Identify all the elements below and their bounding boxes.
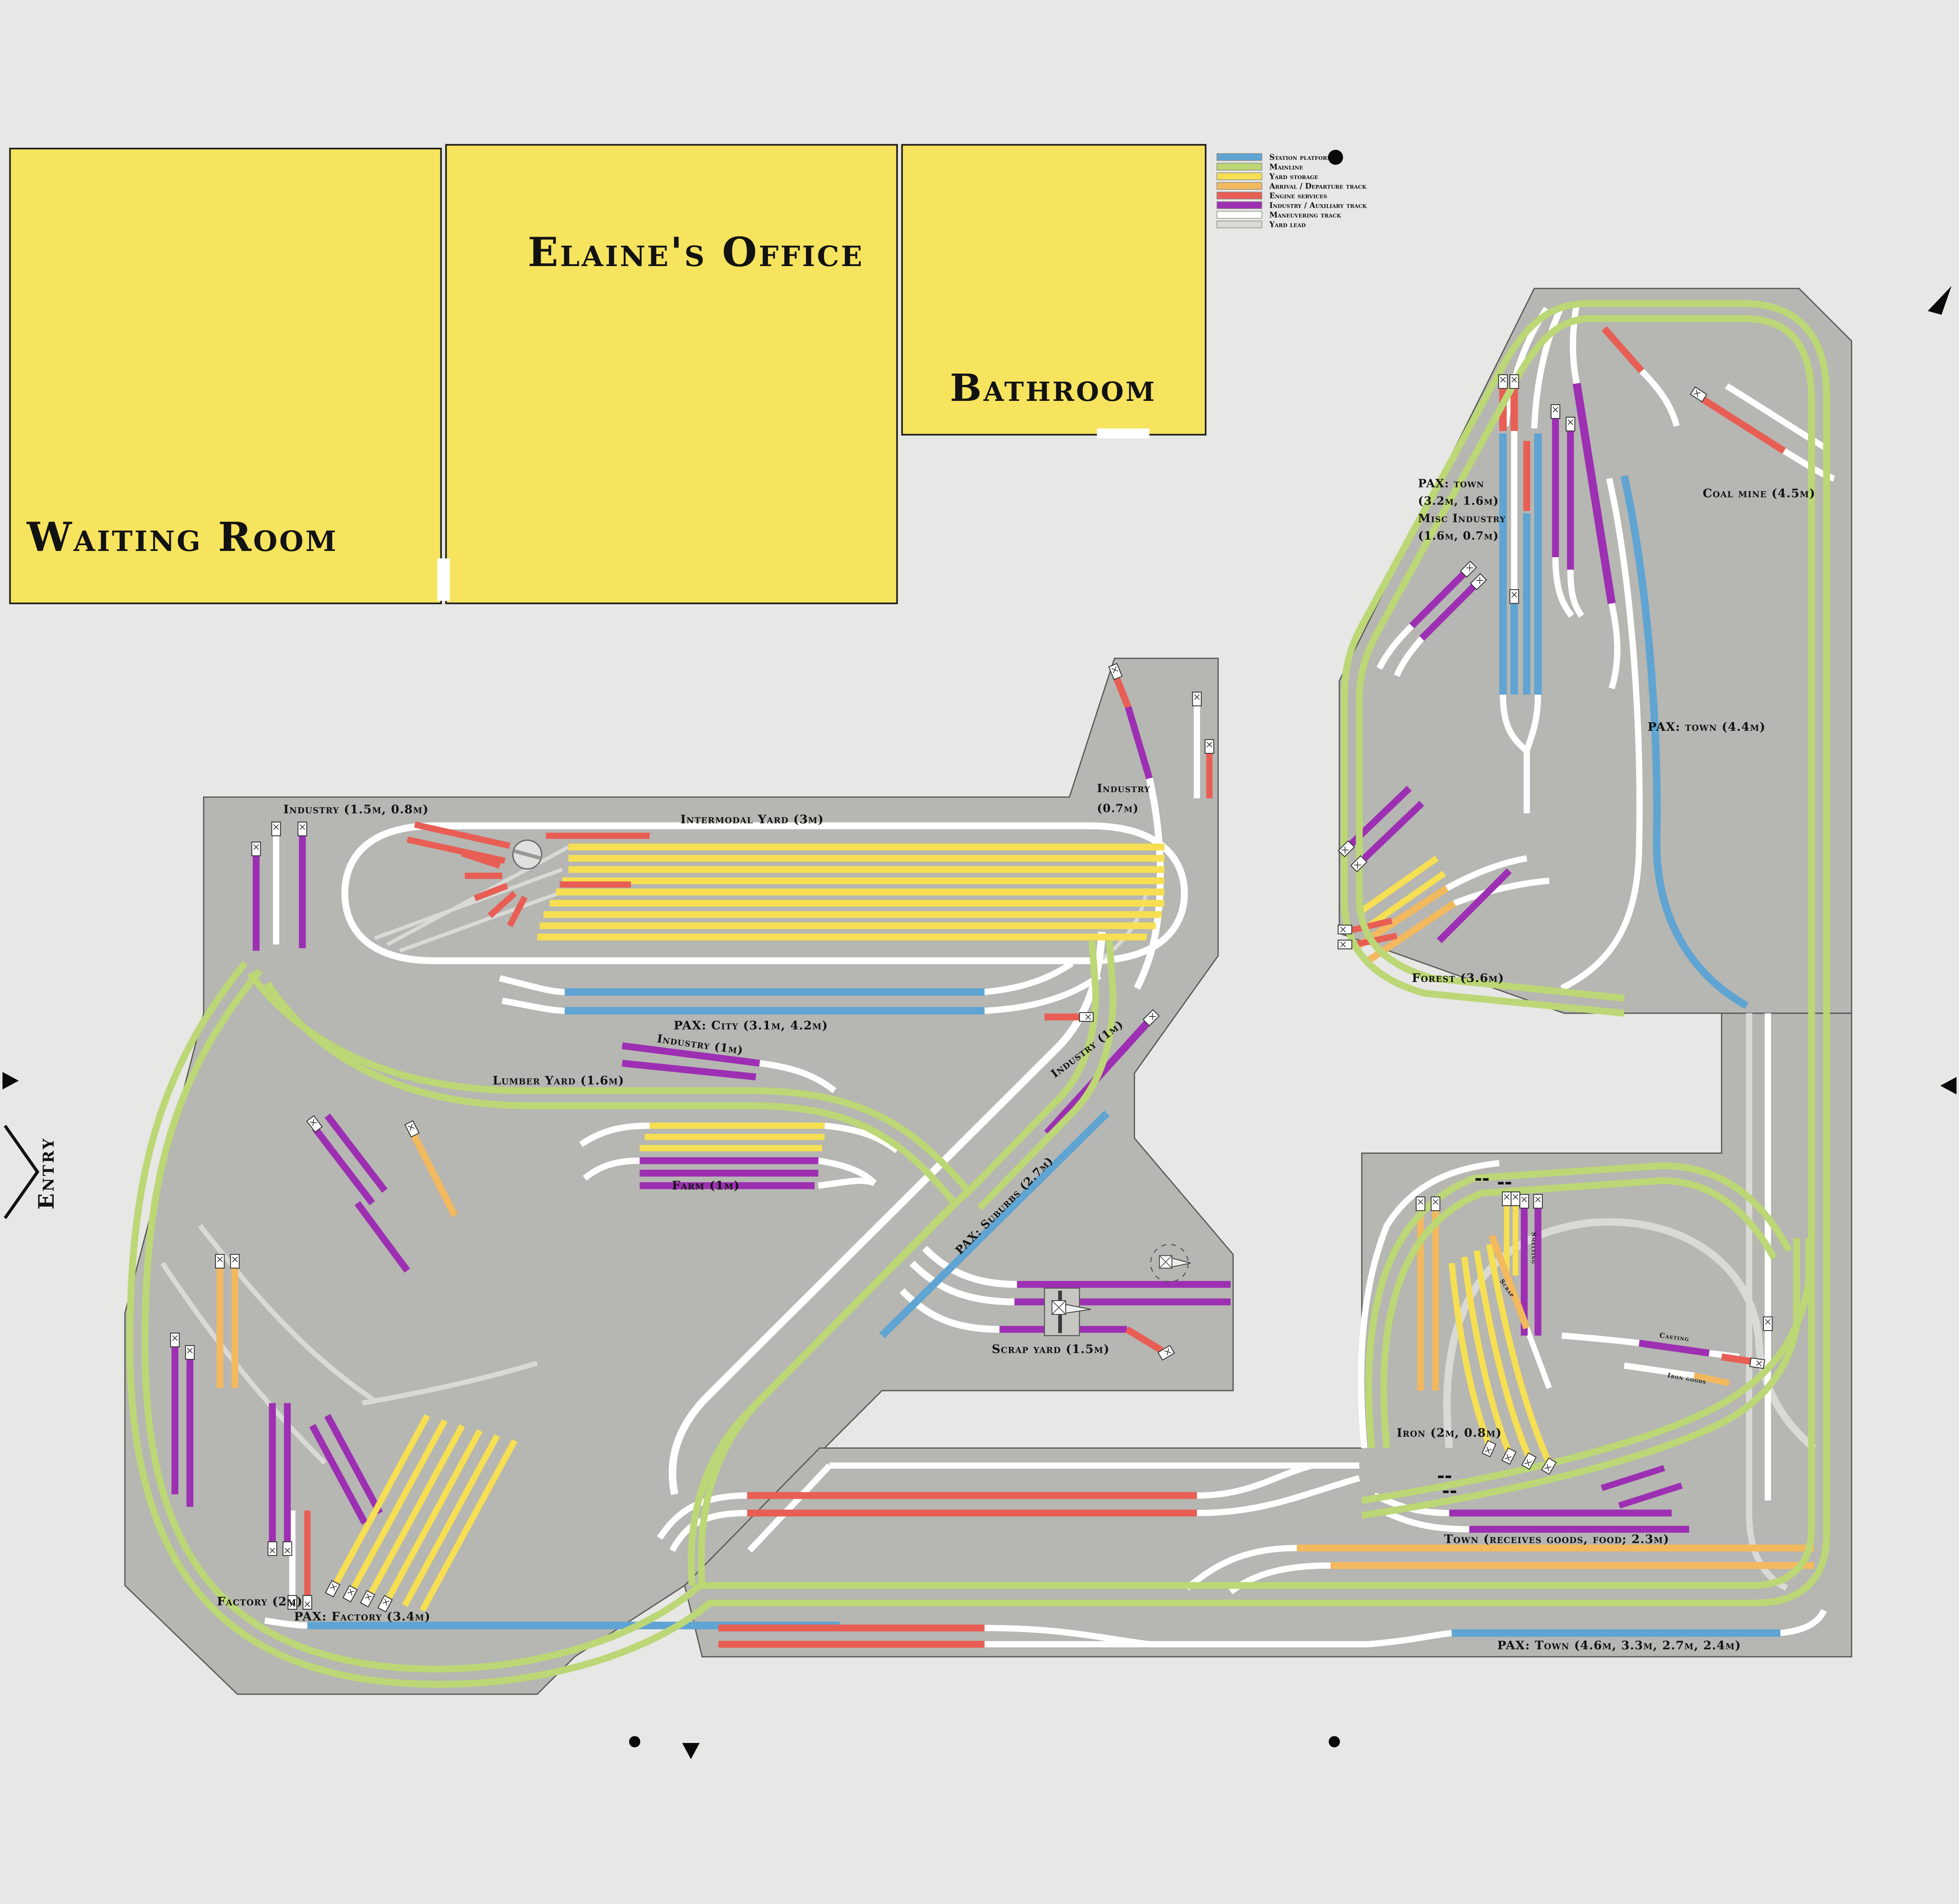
track-plan-canvas: Station platformMainlineYard storageArri… <box>0 0 1959 1904</box>
buffer-stop-icon <box>1503 1192 1511 1206</box>
buffer-stop-icon <box>1416 1197 1425 1211</box>
label-paxtown32-l2: (3.2m, 1.6m) <box>1418 494 1499 507</box>
buffer-stop-icon <box>1499 375 1507 388</box>
buffer-stop-icon <box>1338 925 1352 934</box>
label-industry-07-l2: (0.7m) <box>1097 801 1139 815</box>
edge-arrow-left-icon <box>2 1072 18 1090</box>
buffer-stop-icon <box>1511 1192 1520 1206</box>
label-smelting: Smelting <box>1530 1232 1537 1264</box>
label-iron: Iron (2m, 0.8m) <box>1397 1426 1502 1440</box>
legend-label: Mainline <box>1269 162 1303 171</box>
buffer-stop-icon <box>1520 1194 1528 1208</box>
legend-swatch <box>1217 163 1262 170</box>
edge-arrow-bottom-icon <box>682 1743 700 1759</box>
buffer-stop-icon <box>1534 1194 1542 1208</box>
buffer-stop-icon <box>1750 1358 1765 1368</box>
label-pax-city: PAX: City (3.1m, 4.2m) <box>674 1019 828 1033</box>
buffer-stop-icon <box>283 1542 291 1556</box>
buffer-stop-icon <box>252 842 261 856</box>
label-paxtown44: PAX: town (4.4m) <box>1648 720 1766 734</box>
legend: Station platformMainlineYard storageArri… <box>1217 153 1367 229</box>
label-industry-nw: Industry (1.5m, 0.8m) <box>283 803 429 817</box>
label-factory: Factory (2m) <box>217 1595 303 1609</box>
buffer-stop-icon <box>1338 940 1352 949</box>
label-misc-ind-l2: (1.6m, 0.7m) <box>1418 529 1499 542</box>
corner-dot <box>1329 1736 1340 1747</box>
label-farm: Farm (1m) <box>672 1179 740 1192</box>
label-paxtown32-l1: PAX: town <box>1418 476 1484 490</box>
edge-arrow-corner-icon <box>1928 286 1952 315</box>
room-office <box>446 145 897 603</box>
label-room-office: Elaine's Office <box>528 229 864 276</box>
buffer-stop-icon <box>298 822 307 836</box>
legend-label: Arrival / Departure track <box>1269 181 1367 190</box>
buffer-stop-icon <box>1510 375 1519 388</box>
legend-swatch <box>1217 154 1262 161</box>
label-room-waiting: Waiting Room <box>26 514 338 561</box>
buffer-stop-icon <box>1205 739 1214 753</box>
legend-swatch <box>1217 202 1262 209</box>
buffer-stop-icon <box>230 1254 239 1268</box>
label-intermodal: Intermodal Yard (3m) <box>680 813 824 826</box>
label-misc-ind-l1: Misc Industry <box>1418 512 1506 525</box>
buffer-stop-icon <box>1510 590 1519 603</box>
buffer-stop-icon <box>272 822 281 836</box>
label-pax-factory: PAX: Factory (3.4m) <box>294 1610 431 1623</box>
entry-chevron-icon <box>5 1126 38 1218</box>
buffer-stop-icon <box>1079 1013 1093 1021</box>
label-room-bathroom: Bathroom <box>950 366 1157 410</box>
legend-label: Yard lead <box>1269 220 1306 229</box>
label-coal-mine: Coal mine (4.5m) <box>1703 487 1816 500</box>
buffer-stop-icon <box>215 1254 224 1268</box>
corner-dot <box>1328 150 1343 165</box>
buffer-stop-icon <box>186 1346 194 1359</box>
legend-label: Engine services <box>1269 191 1327 200</box>
legend-label: Station platform <box>1269 153 1333 162</box>
legend-swatch <box>1217 211 1262 218</box>
buffer-stop-icon <box>1763 1317 1772 1331</box>
legend-label: Maneuvering track <box>1269 210 1342 219</box>
label-forest: Forest (3.6m) <box>1412 971 1504 985</box>
legend-swatch <box>1217 173 1262 180</box>
legend-swatch <box>1217 183 1262 190</box>
turntable-icon <box>513 840 541 869</box>
door-gap <box>437 558 450 601</box>
buffer-stop-icon <box>1551 405 1560 418</box>
buffer-stop-icon <box>1193 692 1201 706</box>
edge-arrow-right-icon <box>1940 1077 1956 1094</box>
corner-dot <box>629 1736 641 1747</box>
legend-swatch <box>1217 221 1262 228</box>
label-town-goods: Town (receives goods, food; 2.3m) <box>1444 1533 1669 1546</box>
label-lumber: Lumber Yard (1.6m) <box>492 1074 624 1088</box>
buffer-stop-icon <box>170 1333 179 1347</box>
label-scrap-yard: Scrap yard (1.5m) <box>992 1342 1110 1356</box>
door-gap <box>1097 428 1150 438</box>
buffer-stop-icon <box>1431 1197 1440 1211</box>
buffer-stop-icon <box>303 1596 311 1609</box>
legend-label: Yard storage <box>1269 172 1318 181</box>
label-industry-07-l1: Industry <box>1097 781 1150 795</box>
buffer-stop-icon <box>1566 417 1575 431</box>
buffer-stop-icon <box>268 1542 277 1556</box>
legend-label: Industry / Auxiliary track <box>1269 201 1367 210</box>
legend-swatch <box>1217 192 1262 199</box>
label-paxtown-bottom: PAX: Town (4.6m, 3.3m, 2.7m, 2.4m) <box>1497 1639 1741 1652</box>
